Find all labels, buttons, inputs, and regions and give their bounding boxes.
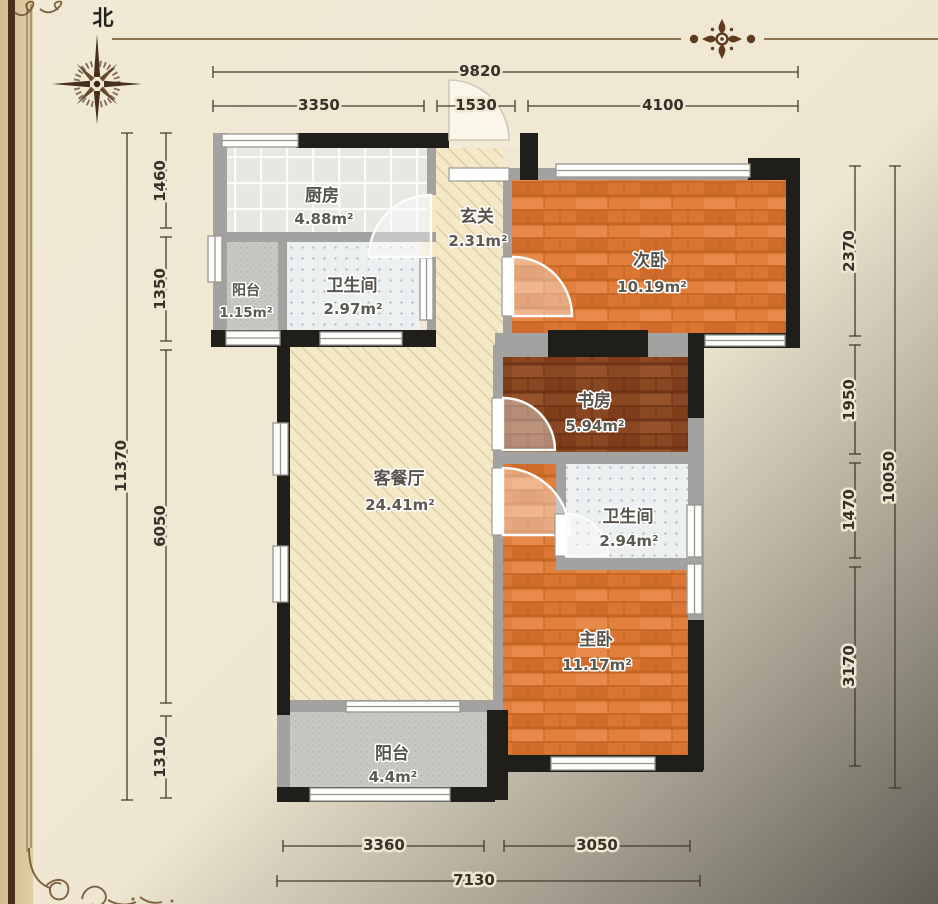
bath-mid-door-leaf xyxy=(555,514,566,556)
entrance-door-leaf xyxy=(449,168,509,181)
study-door-leaf xyxy=(492,398,503,450)
dim-right-total: 10050 xyxy=(880,451,898,503)
dim-right-seg2: 1950 xyxy=(840,379,858,421)
window xyxy=(273,546,288,602)
room-entry-area: 2.31m² xyxy=(448,232,507,250)
room-living-label: 客餐厅 xyxy=(373,468,425,489)
dim-bottom-seg2: 3050 xyxy=(576,836,618,854)
room-bedroom-second-label: 次卧 xyxy=(633,250,667,271)
room-kitchen-label: 厨房 xyxy=(305,185,339,206)
room-bath-top-label: 卫生间 xyxy=(327,275,378,296)
dim-top-total: 9820 xyxy=(459,62,501,80)
room-bath-top-area: 2.97m² xyxy=(323,300,382,318)
floorplan-page: 北 xyxy=(0,0,938,904)
dim-left-seg2: 1350 xyxy=(151,268,169,310)
room-bedroom-master-label: 主卧 xyxy=(579,629,613,650)
room-balcony-top-area: 1.15m² xyxy=(219,305,272,321)
window xyxy=(687,564,702,614)
frame-gold-band xyxy=(0,0,33,904)
window xyxy=(222,134,298,147)
room-balcony-bottom-area: 4.4m² xyxy=(369,768,418,786)
window xyxy=(556,164,750,177)
dim-left-seg4: 1310 xyxy=(151,736,169,778)
dim-right-seg1: 2370 xyxy=(840,230,858,272)
room-balcony-top-label: 阳台 xyxy=(232,282,260,299)
window xyxy=(273,423,288,475)
room-living-floor xyxy=(290,347,493,707)
window xyxy=(346,701,460,712)
room-living-area: 24.41m² xyxy=(365,496,435,514)
room-bath-mid-area: 2.94m² xyxy=(599,532,658,550)
room-bath-mid-label: 卫生间 xyxy=(603,506,654,527)
dim-top-seg3: 4100 xyxy=(642,96,684,114)
dim-bottom-seg1: 3360 xyxy=(363,836,405,854)
room-bedroom-second-area: 10.19m² xyxy=(617,278,687,296)
dim-left-total: 11370 xyxy=(112,440,130,492)
window xyxy=(320,332,402,345)
room-kitchen-area: 4.88m² xyxy=(294,210,353,228)
window xyxy=(687,505,702,557)
bedroom-second-door-leaf xyxy=(502,257,513,316)
room-study-area: 5.94m² xyxy=(565,417,624,435)
window xyxy=(310,788,450,801)
frame-dark-rule xyxy=(8,0,15,904)
dim-left-seg3: 6050 xyxy=(151,505,169,547)
room-study-label: 书房 xyxy=(577,390,611,411)
room-entry-label: 玄关 xyxy=(460,206,494,227)
window xyxy=(705,335,785,346)
dim-top-seg1: 3350 xyxy=(298,96,340,114)
dim-left-seg1: 1460 xyxy=(151,160,169,202)
window xyxy=(551,757,655,770)
north-label: 北 xyxy=(93,6,114,30)
room-balcony-bottom-label: 阳台 xyxy=(375,743,409,764)
bedroom-master-door-leaf xyxy=(492,468,503,535)
window xyxy=(208,236,222,282)
dim-right-seg4: 3170 xyxy=(840,645,858,687)
room-bedroom-master-area: 11.17m² xyxy=(562,656,632,674)
dim-top-seg2: 1530 xyxy=(455,96,497,114)
dim-right-seg3: 1470 xyxy=(840,489,858,531)
window xyxy=(420,258,433,320)
window xyxy=(226,331,280,345)
dim-bottom-total: 7130 xyxy=(453,871,495,889)
